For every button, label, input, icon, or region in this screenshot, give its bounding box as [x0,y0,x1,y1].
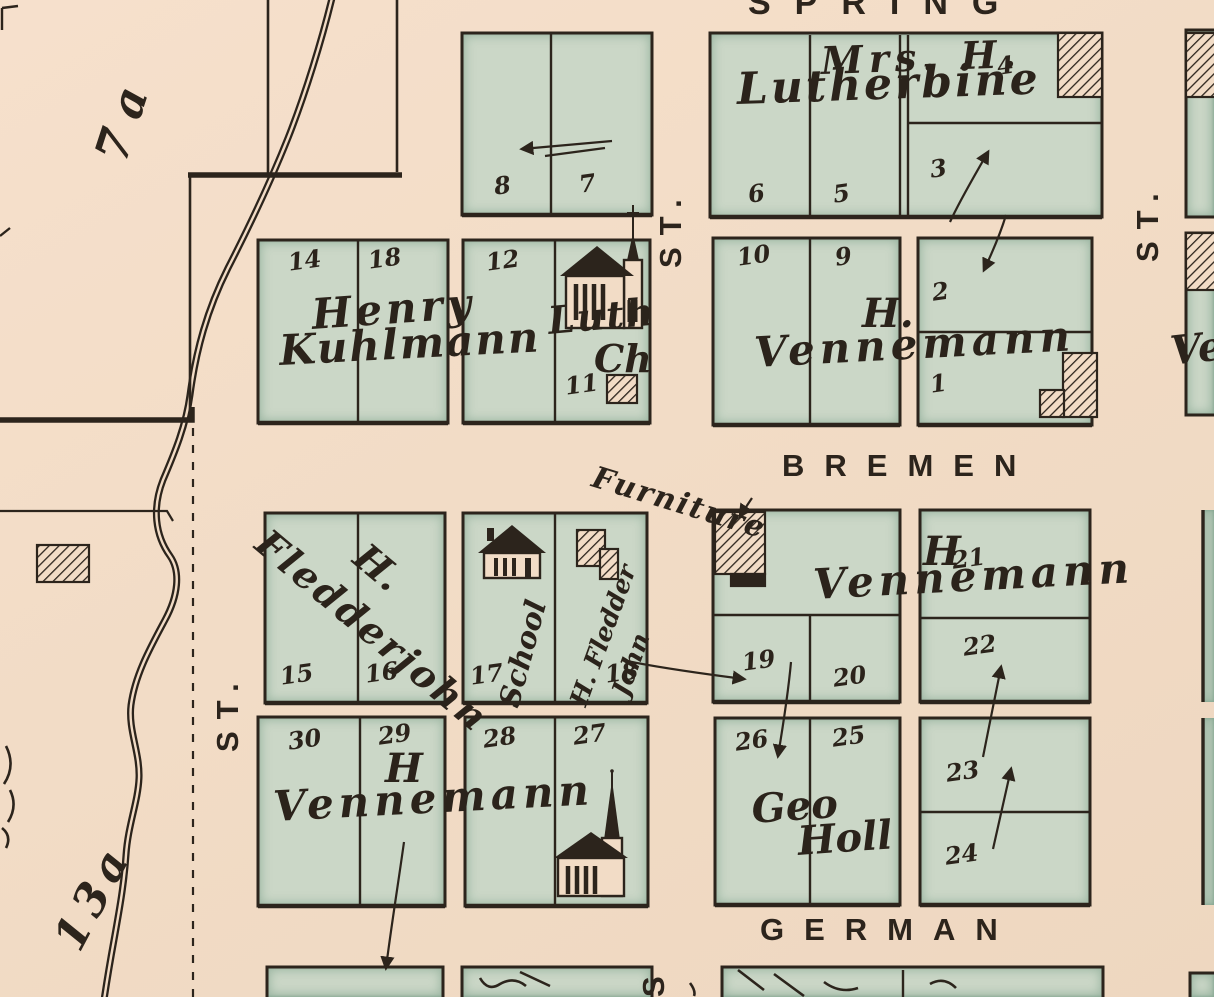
lot-number-18a: 18 [366,241,403,274]
lot-number-25: 25 [830,719,867,752]
lot-number-16: 16 [363,655,400,688]
lot-number-17: 17 [468,657,505,690]
lot-number-2: 2 [930,276,951,307]
block [1203,510,1214,702]
lot-number-11: 11 [563,367,600,400]
lot-number-20: 20 [831,659,868,692]
lot-number-12: 12 [484,243,521,276]
lot-number-29: 29 [376,717,413,750]
block [722,967,1103,997]
lot-number-27: 27 [571,717,608,750]
lot-number-18b: 18 [603,655,640,688]
parcel-label-13a: 13a [44,835,142,959]
block [462,967,652,997]
parcel-label-7a: 7a [84,67,163,169]
block [267,967,443,997]
lot-number-22: 22 [961,628,998,661]
lot-number-24: 24 [943,837,980,870]
block [1203,718,1214,905]
block [1186,30,1214,217]
street-label-st-middle: ST. [653,187,689,268]
lot-number-26: 26 [733,723,770,756]
street-label-st-west: ST. [210,671,246,752]
lot-number-7: 7 [577,168,598,199]
owner-luth-ch-line1: Luth [546,289,657,343]
street-label-st-east: ST. [1130,181,1166,262]
street-label-bremen: BREMEN [782,448,1036,484]
block [1190,973,1214,997]
block [462,33,652,215]
owner-geo-holl-line2: Holl [796,811,894,865]
lot-number-8: 8 [492,170,513,201]
street-label-spring: SPRING [748,0,1022,23]
block [920,718,1090,905]
owner-luth-ch-line2: Ch [594,336,652,381]
hatched-building [37,545,89,582]
lot-number-9: 9 [833,241,854,272]
owner-vennemann-partial: Ve [1168,322,1214,374]
plat-map: SPRING BREMEN GERMAN ST. ST. ST. S 7a 13… [0,0,1214,997]
lot-number-30: 30 [286,722,323,755]
lot-number-14: 14 [286,243,323,276]
lot-number-23: 23 [944,754,981,787]
lot-number-28: 28 [481,720,518,753]
lot-number-19: 19 [740,643,777,676]
lot-number-15: 15 [278,657,315,690]
lot-number-6: 6 [746,178,767,209]
street-label-s-partial: S [636,964,672,997]
lot-number-21: 21 [950,541,987,574]
lot-number-10: 10 [735,238,772,271]
street-label-german: GERMAN [760,912,1018,948]
